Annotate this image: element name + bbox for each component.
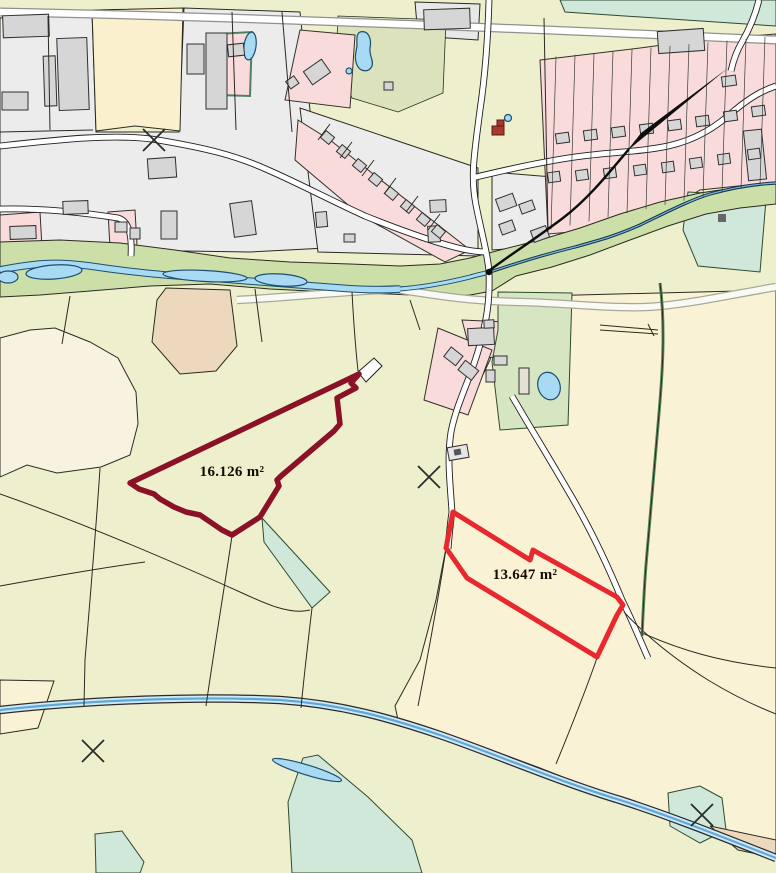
house-building (751, 105, 765, 117)
arrow-target-point (486, 269, 492, 275)
house-building (667, 119, 681, 131)
house-building (747, 148, 760, 160)
house-building (547, 171, 560, 183)
cadastral-map: 16.126 m² 13.647 m² (0, 0, 776, 873)
house-building (723, 110, 737, 122)
house-building (689, 157, 702, 169)
house-building (633, 164, 646, 176)
house-building (717, 153, 730, 165)
house-building (661, 161, 674, 173)
west-parcel-area-label: 16.126 m² (200, 464, 265, 480)
red-roof-building (492, 126, 504, 135)
map-canvas: 16.126 m² 13.647 m² (0, 0, 776, 873)
house-building (575, 169, 588, 181)
house-building (695, 115, 709, 127)
house-building (583, 129, 597, 141)
house-building (611, 126, 625, 138)
east-parcel-area-label: 13.647 m² (493, 567, 558, 583)
house-building (555, 132, 569, 144)
